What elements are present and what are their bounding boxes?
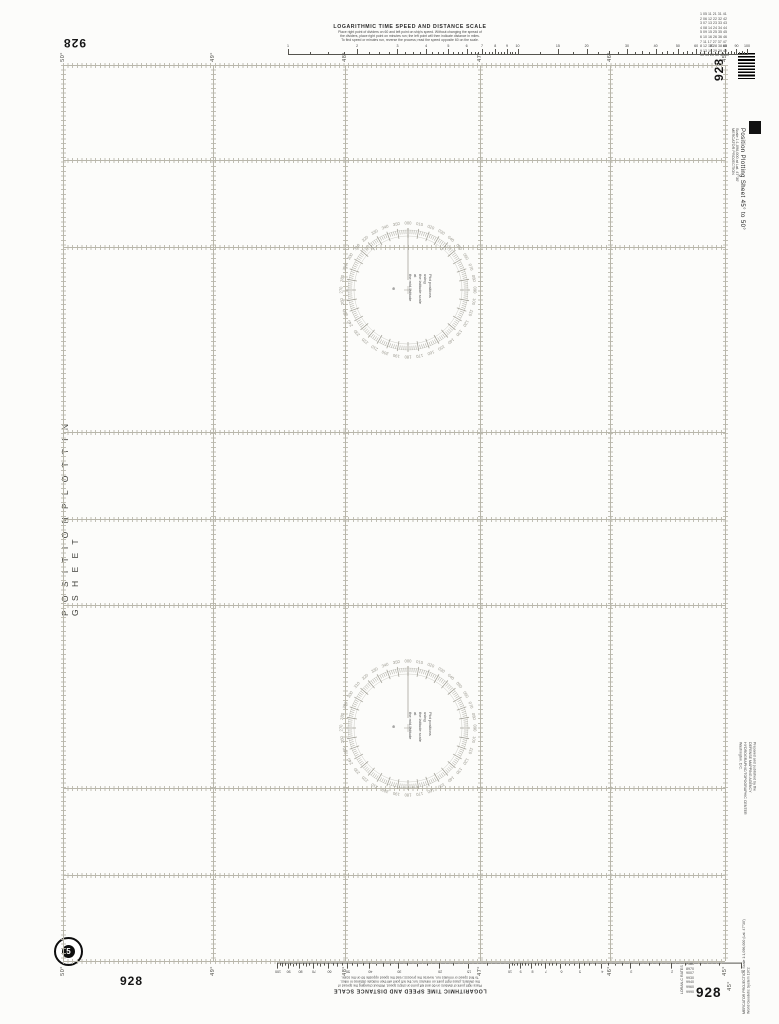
sheet-side-projection: MERCATOR PROJECTION — [731, 128, 735, 248]
rose-degree-label: 180 — [404, 355, 412, 360]
grid-meridian-line — [480, 65, 481, 961]
ruler-minor-tick — [683, 52, 684, 55]
ruler-tick-label: 20 — [438, 970, 442, 974]
latitude-label-top: 47° — [477, 52, 483, 62]
rose-degree-label: 010 — [416, 659, 424, 665]
rose-degree-label: 210 — [370, 344, 379, 352]
rose-center-mark-bottom: ⊕ — [392, 724, 395, 729]
rose-degree-label: 340 — [381, 661, 390, 668]
micro-text-row: DEFENSE MAPPING AGENCY — [747, 742, 752, 838]
ruler-minor-tick — [471, 52, 472, 55]
rose-degree-label: 250 — [341, 308, 348, 317]
ruler-tick-label: 60 — [694, 44, 698, 48]
ruler-tick-label: 40 — [368, 970, 372, 974]
rose-degree-label: 040 — [447, 673, 456, 682]
ruler-minor-tick — [540, 52, 541, 55]
ruler-minor-tick — [405, 52, 406, 55]
ruler-minor-tick — [692, 52, 693, 55]
ruler-minor-tick — [673, 52, 674, 55]
rose-degree-label: 330 — [370, 228, 379, 236]
ruler-major-tick — [627, 49, 628, 55]
rose-degree-label: 270 — [339, 286, 344, 294]
ruler-major-tick — [678, 49, 679, 55]
ruler-minor-tick — [618, 52, 619, 55]
plotting-sheet-page: 928 1 05 11 21 31 412 06 12 22 32 423 07… — [0, 0, 779, 1024]
log-scale-ruler-top: 12345678910152030405060708090100 — [288, 43, 747, 55]
rose-degree-label: 190 — [392, 353, 400, 359]
rose-degree-label: 030 — [437, 666, 446, 674]
ruler-minor-tick — [485, 52, 486, 55]
ruler-tick-label: 80 — [723, 44, 727, 48]
ruler-tick-label: 20 — [585, 44, 589, 48]
grid-parallel-line — [63, 432, 725, 433]
ruler-tick-label: 40 — [654, 44, 658, 48]
ruler-major-tick — [507, 49, 508, 55]
ruler-minor-tick — [573, 52, 574, 55]
ruler-tick-label: 70 — [709, 44, 713, 48]
ruler-minor-tick — [389, 52, 390, 55]
ruler-minor-tick — [498, 52, 499, 55]
ruler-minor-tick — [718, 51, 719, 55]
ruler-minor-tick — [501, 52, 502, 55]
ruler-major-tick — [696, 49, 697, 55]
ruler-tick-label: 80 — [298, 970, 302, 974]
grid-parallel-line — [63, 160, 725, 161]
rose-center-note-line: the mid-latitude — [408, 274, 413, 308]
rose-degree-label: 330 — [370, 666, 379, 674]
log-scale-bottom-instruction-2: the dividers, place right point on minut… — [290, 979, 530, 983]
ruler-minor-tick — [742, 51, 743, 55]
rose-degree-label: 160 — [426, 787, 435, 794]
ruler-minor-tick — [715, 52, 716, 55]
rose-degree-label: 280 — [339, 712, 345, 720]
grid-meridian-line — [345, 65, 346, 961]
ruler-minor-tick — [328, 52, 329, 55]
micro-text-row: Prepared and published by the — [752, 742, 757, 838]
ruler-tick-label: 3 — [396, 44, 398, 48]
rose-degree-label: 060 — [462, 252, 470, 261]
rose-degree-label: 100 — [471, 298, 477, 306]
ruler-minor-tick — [458, 52, 459, 55]
rose-degree-label: 350 — [392, 221, 400, 227]
sheet-side-title: Position Plotting Sheet 45° to 50° — [739, 128, 745, 248]
rose-degree-label: 300 — [346, 690, 354, 699]
ruler-minor-tick — [453, 52, 454, 55]
ruler-tick-label: 8 — [531, 970, 533, 974]
rose-degree-label: 200 — [380, 349, 389, 356]
ruler-major-tick — [448, 49, 449, 55]
ruler-tick-label: 2 — [671, 970, 673, 974]
rose-degree-label: 120 — [462, 319, 470, 328]
ruler-minor-tick — [649, 52, 650, 55]
ruler-tick-label: 2 — [356, 44, 358, 48]
grid-meridian-line — [213, 65, 214, 961]
micro-text-row: HYDROGRAPHIC/TOPOGRAPHIC CENTER — [743, 742, 748, 838]
rose-degree-label: 190 — [392, 791, 400, 797]
ruler-tick-label: 4 — [601, 970, 603, 974]
ruler-tick-label: 100 — [275, 970, 281, 974]
rose-center-note-top: Plot positions usingthe latitude scale a… — [408, 274, 433, 308]
latitude-label-bottom: 46° — [607, 966, 613, 976]
ruler-minor-tick — [512, 52, 513, 55]
rose-degree-label: 090 — [473, 287, 478, 295]
rose-degree-label: 000 — [405, 659, 413, 664]
ruler-tick-label: 90 — [287, 970, 291, 974]
ruler-minor-tick — [369, 52, 370, 55]
rose-degree-label: 080 — [471, 274, 477, 282]
ruler-minor-tick — [635, 52, 636, 55]
ruler-minor-tick — [700, 52, 701, 55]
log-scale-bottom-instruction-1: Place right point of dividers on 60 and … — [290, 983, 530, 987]
grid-meridian-line — [725, 65, 726, 961]
projection-note: MERCATOR PROJECTION Scale 1:1,096,000 (L… — [742, 862, 751, 1014]
rose-degree-label: 160 — [426, 349, 435, 356]
grid-parallel-line — [63, 875, 725, 876]
ruler-major-tick — [558, 49, 559, 55]
ruler-tick-label: 1 — [287, 44, 289, 48]
ruler-tick-label: 7 — [481, 44, 483, 48]
ruler-major-tick — [495, 49, 496, 55]
rose-degree-label: 080 — [471, 712, 477, 720]
rose-degree-label: 350 — [392, 659, 400, 665]
latitude-label-bottom: 45° — [722, 966, 728, 976]
ruler-tick-label: 60 — [327, 970, 331, 974]
latitude-label-bottom: 48° — [342, 966, 348, 976]
rose-degree-label: 040 — [447, 235, 456, 244]
latitude-label-bottom: 47° — [477, 966, 483, 976]
ruler-minor-tick — [504, 52, 505, 55]
latitude-label-top: 50° — [60, 52, 66, 62]
ruler-minor-tick — [642, 51, 643, 55]
rose-degree-label: 210 — [370, 782, 379, 790]
rose-degree-label: 250 — [341, 746, 348, 755]
rose-degree-label: 050 — [455, 681, 464, 690]
stock-number-box — [749, 121, 761, 134]
ruler-tick-label: 15 — [556, 44, 560, 48]
ruler-minor-tick — [662, 52, 663, 55]
ruler-tick-label: 5 — [579, 970, 581, 974]
ruler-minor-tick — [462, 52, 463, 55]
ruler-minor-tick — [438, 52, 439, 55]
ruler-tick-label: 7 — [545, 970, 547, 974]
ruler-major-tick — [357, 49, 358, 55]
ruler-tick-label: 10 — [516, 44, 520, 48]
ruler-tick-label: 5 — [447, 44, 449, 48]
rose-center-note-bottom: Plot positions usingthe latitude scale a… — [408, 712, 433, 746]
grid-parallel-line — [63, 961, 725, 962]
ruler-minor-tick — [379, 52, 380, 55]
ruler-tick-label: 9 — [520, 970, 522, 974]
rose-degree-label: 310 — [353, 680, 362, 689]
ruler-tick-label: 6 — [466, 44, 468, 48]
ruler-major-tick — [736, 49, 737, 55]
rose-degree-label: 100 — [471, 736, 477, 744]
micro-text-row: World Geodetic System 1972 — [747, 862, 752, 1014]
ruler-tick-label: 3 — [630, 970, 632, 974]
ruler-minor-tick — [510, 52, 511, 55]
ruler-tick-label: 90 — [734, 44, 738, 48]
rose-degree-label: 060 — [462, 690, 470, 699]
rose-degree-label: 070 — [467, 701, 474, 710]
rose-degree-label: 270 — [339, 724, 344, 732]
ruler-minor-tick — [310, 52, 311, 55]
ruler-major-tick — [711, 49, 712, 55]
rose-degree-label: 230 — [352, 766, 361, 775]
ruler-minor-tick — [420, 52, 421, 55]
ruler-major-tick — [397, 49, 398, 55]
rose-degree-label: 010 — [416, 221, 424, 227]
ruler-tick-label: 9 — [506, 44, 508, 48]
grid-meridian-line — [610, 65, 611, 961]
ruler-minor-tick — [413, 52, 414, 55]
ruler-minor-tick — [515, 52, 516, 55]
rose-degree-label: 000 — [405, 221, 413, 226]
ruler-tick-label: 10 — [508, 970, 512, 974]
rose-degree-label: 170 — [415, 353, 423, 359]
log-scale-top: LOGARITHMIC TIME SPEED AND DISTANCE SCAL… — [288, 24, 747, 55]
rose-degree-label: 120 — [462, 757, 470, 766]
rose-degree-label: 260 — [339, 297, 345, 305]
rose-degree-label: 300 — [346, 252, 354, 261]
ruler-minor-tick — [489, 52, 490, 55]
ruler-tick-label: 8 — [494, 44, 496, 48]
ruler-major-tick — [656, 49, 657, 55]
ruler-minor-tick — [734, 52, 735, 55]
ruler-minor-tick — [687, 51, 688, 55]
rose-degree-label: 130 — [455, 329, 464, 338]
rose-center-mark-top: ⊕ — [392, 286, 395, 291]
ruler-minor-tick — [744, 52, 745, 55]
ruler-major-tick — [518, 49, 519, 55]
ruler-major-tick — [467, 49, 468, 55]
ruler-tick-label: 50 — [676, 44, 680, 48]
ruler-tick-label: 15 — [467, 970, 471, 974]
rose-degree-label: 220 — [360, 337, 369, 346]
grid-parallel-line — [63, 605, 725, 606]
rose-degree-label: 260 — [339, 735, 345, 743]
ruler-minor-tick — [667, 51, 668, 55]
rose-degree-label: 070 — [467, 263, 474, 272]
rose-degree-label: 290 — [341, 262, 348, 271]
rose-degree-label: 230 — [352, 328, 361, 337]
ruler-minor-tick — [598, 52, 599, 55]
rose-degree-label: 110 — [467, 747, 474, 756]
rose-degree-label: 180 — [404, 793, 412, 798]
ruler-major-tick — [747, 49, 748, 55]
rose-degree-label: 220 — [360, 775, 369, 784]
rose-degree-label: 320 — [361, 234, 370, 243]
log-scale-bottom-instruction-3: To find speed or minutes run, reverse th… — [290, 975, 530, 979]
ruler-major-tick — [587, 49, 588, 55]
latitude-label-top: 49° — [210, 52, 216, 62]
grid-parallel-line — [63, 65, 725, 66]
rose-degree-label: 240 — [346, 757, 354, 766]
ruler-minor-tick — [739, 52, 740, 55]
ruler-major-tick — [426, 49, 427, 55]
rose-degree-label: 290 — [341, 700, 348, 709]
ruler-tick-label: 100 — [744, 44, 750, 48]
stock-barcode — [738, 53, 755, 79]
grid-parallel-line — [63, 519, 725, 520]
ruler-tick-label: 6 — [560, 970, 562, 974]
ruler-tick-label: 70 — [312, 970, 316, 974]
ruler-minor-tick — [708, 52, 709, 55]
rose-degree-label: 170 — [415, 791, 423, 797]
rose-degree-label: 310 — [353, 242, 362, 251]
rose-center-note-line: Plot positions using — [423, 712, 433, 746]
rose-center-note-line: the latitude scale at — [413, 712, 423, 746]
rose-degree-label: 140 — [446, 337, 455, 346]
rose-degree-label: 150 — [437, 344, 446, 352]
ruler-tick-label: 4 — [425, 44, 427, 48]
latitude-label-top: 46° — [607, 52, 613, 62]
rose-degree-label: 320 — [361, 672, 370, 681]
rose-degree-label: 050 — [455, 243, 464, 252]
rose-degree-label: 110 — [467, 309, 474, 318]
sheet-side-title-block: Position Plotting Sheet 45° to 50° Scale… — [731, 128, 745, 248]
ruler-tick-label: 30 — [397, 970, 401, 974]
rose-degree-label: 130 — [455, 767, 464, 776]
latitude-label-top: 48° — [342, 52, 348, 62]
log-scale-title-bottom: LOGARITHMIC TIME SPEED AND DISTANCE SCAL… — [290, 988, 530, 994]
ruler-minor-tick — [432, 52, 433, 55]
rose-degree-label: 020 — [427, 661, 436, 668]
rose-degree-label: 340 — [381, 223, 390, 230]
rose-degree-label: 150 — [437, 782, 446, 790]
ruler-tick-label: 30 — [625, 44, 629, 48]
rose-center-note-line: Plot positions using — [423, 274, 433, 308]
latitude-label-bottom: 49° — [210, 966, 216, 976]
ruler-tick-label: 1 — [741, 970, 743, 974]
micro-text-row: Washington, D.C. — [738, 742, 743, 838]
ruler-major-tick — [741, 963, 742, 969]
ruler-minor-tick — [492, 52, 493, 55]
rose-degree-label: 140 — [446, 775, 455, 784]
ruler-minor-tick — [731, 51, 732, 55]
chart-number-bottom-left: 928 — [120, 974, 143, 988]
chart-number-top-left: 928 — [63, 36, 86, 50]
rose-degree-label: 240 — [346, 319, 354, 328]
ruler-major-tick — [288, 49, 289, 55]
ruler-minor-tick — [704, 51, 705, 55]
rose-degree-label: 200 — [380, 787, 389, 794]
publisher-note: Prepared and published by theDEFENSE MAP… — [738, 742, 756, 838]
grid-meridian-line — [63, 65, 64, 961]
ruler-minor-tick — [443, 52, 444, 55]
rose-degree-label: 090 — [473, 725, 478, 733]
ruler-minor-tick — [475, 52, 476, 55]
rose-center-note-line: the latitude scale at — [413, 274, 423, 308]
rose-degree-label: 030 — [437, 228, 446, 236]
rose-center-note-line: the mid-latitude — [408, 712, 413, 746]
rose-degree-label: 020 — [427, 223, 436, 230]
rose-degree-label: 280 — [339, 274, 345, 282]
latitude-label-bottom: 50° — [60, 966, 66, 976]
latitude-label-top: 45° — [722, 52, 728, 62]
